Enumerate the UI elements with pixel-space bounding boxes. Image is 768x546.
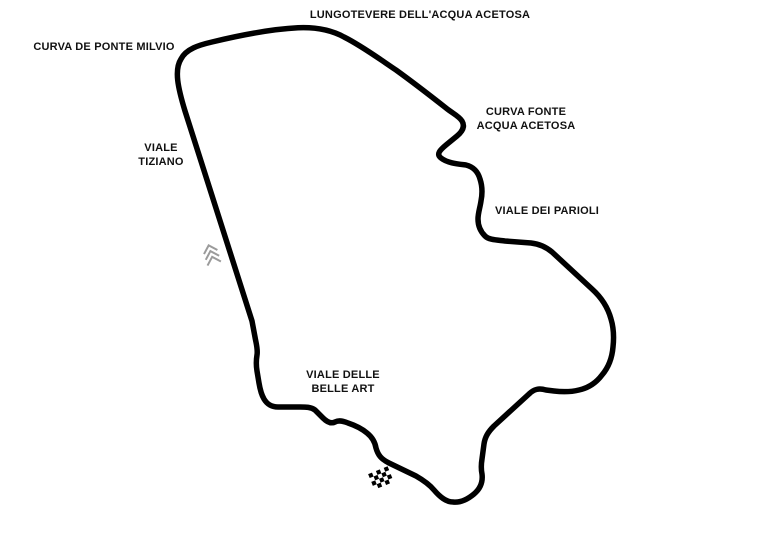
label-curva-de-ponte-milvio: CURVA DE PONTE MILVIO: [33, 40, 174, 54]
label-curva-fonte-acqua-acetosa: CURVA FONTE ACQUA ACETOSA: [477, 105, 576, 133]
circuit-map: LUNGOTEVERE DELL'ACQUA ACETOSA CURVA DE …: [0, 0, 768, 546]
label-viale-tiziano: VIALE TIZIANO: [138, 141, 183, 169]
label-lungotevere-dell-acqua-acetosa: LUNGOTEVERE DELL'ACQUA ACETOSA: [310, 8, 530, 22]
circuit-drawing: [0, 0, 768, 546]
track-outline: [177, 28, 613, 502]
finish-line-flag-icon: [368, 466, 394, 489]
direction-chevrons-icon: [202, 243, 221, 265]
label-viale-delle-belle-art: VIALE DELLE BELLE ART: [306, 368, 380, 396]
label-viale-dei-parioli: VIALE DEI PARIOLI: [495, 204, 599, 218]
